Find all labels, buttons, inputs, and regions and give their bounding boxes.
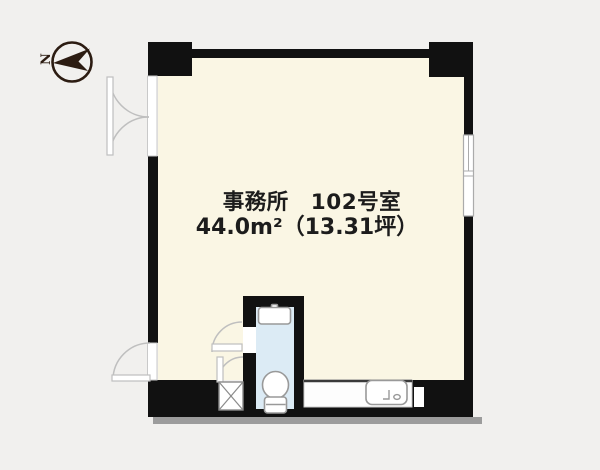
toilet-icon [263, 372, 289, 399]
wall-vent-gap [414, 387, 424, 407]
wall-right-lower [464, 216, 473, 380]
door-leaf [212, 344, 242, 351]
floorplan-svg: N 事務所 102号室 44.0m²（13.31坪） [0, 0, 600, 470]
room-name-label: 事務所 102号室 [223, 189, 401, 215]
floorplan-image: N 事務所 102号室 44.0m²（13.31坪） [0, 0, 600, 470]
wall-under-counter [304, 407, 412, 417]
pillar-top-left [148, 42, 192, 76]
toilet-wall-right [294, 307, 304, 417]
door-leaf [217, 357, 223, 382]
toilet-tank-icon [259, 308, 291, 325]
north-label: N [39, 53, 54, 65]
sink-icon [366, 381, 407, 405]
room-area-label: 44.0m²（13.31坪） [196, 215, 418, 240]
entry-door-opening [148, 76, 158, 156]
sliding-window [464, 135, 474, 216]
kitchen-counter [304, 380, 412, 407]
toilet-wall-left-upper [243, 307, 256, 327]
toilet-wall-left-lower [243, 353, 256, 417]
pillar-top-right [429, 42, 473, 77]
wall-bottom-left [148, 380, 219, 417]
wall-top [190, 49, 431, 58]
wall-right-upper [464, 76, 473, 135]
bottom-shadow [153, 417, 482, 424]
door-leaf [112, 375, 150, 381]
wall-under-shaft [219, 410, 243, 417]
door-leaf [107, 77, 113, 155]
wall-left-mid [148, 156, 158, 343]
toilet-door-opening [243, 327, 256, 353]
